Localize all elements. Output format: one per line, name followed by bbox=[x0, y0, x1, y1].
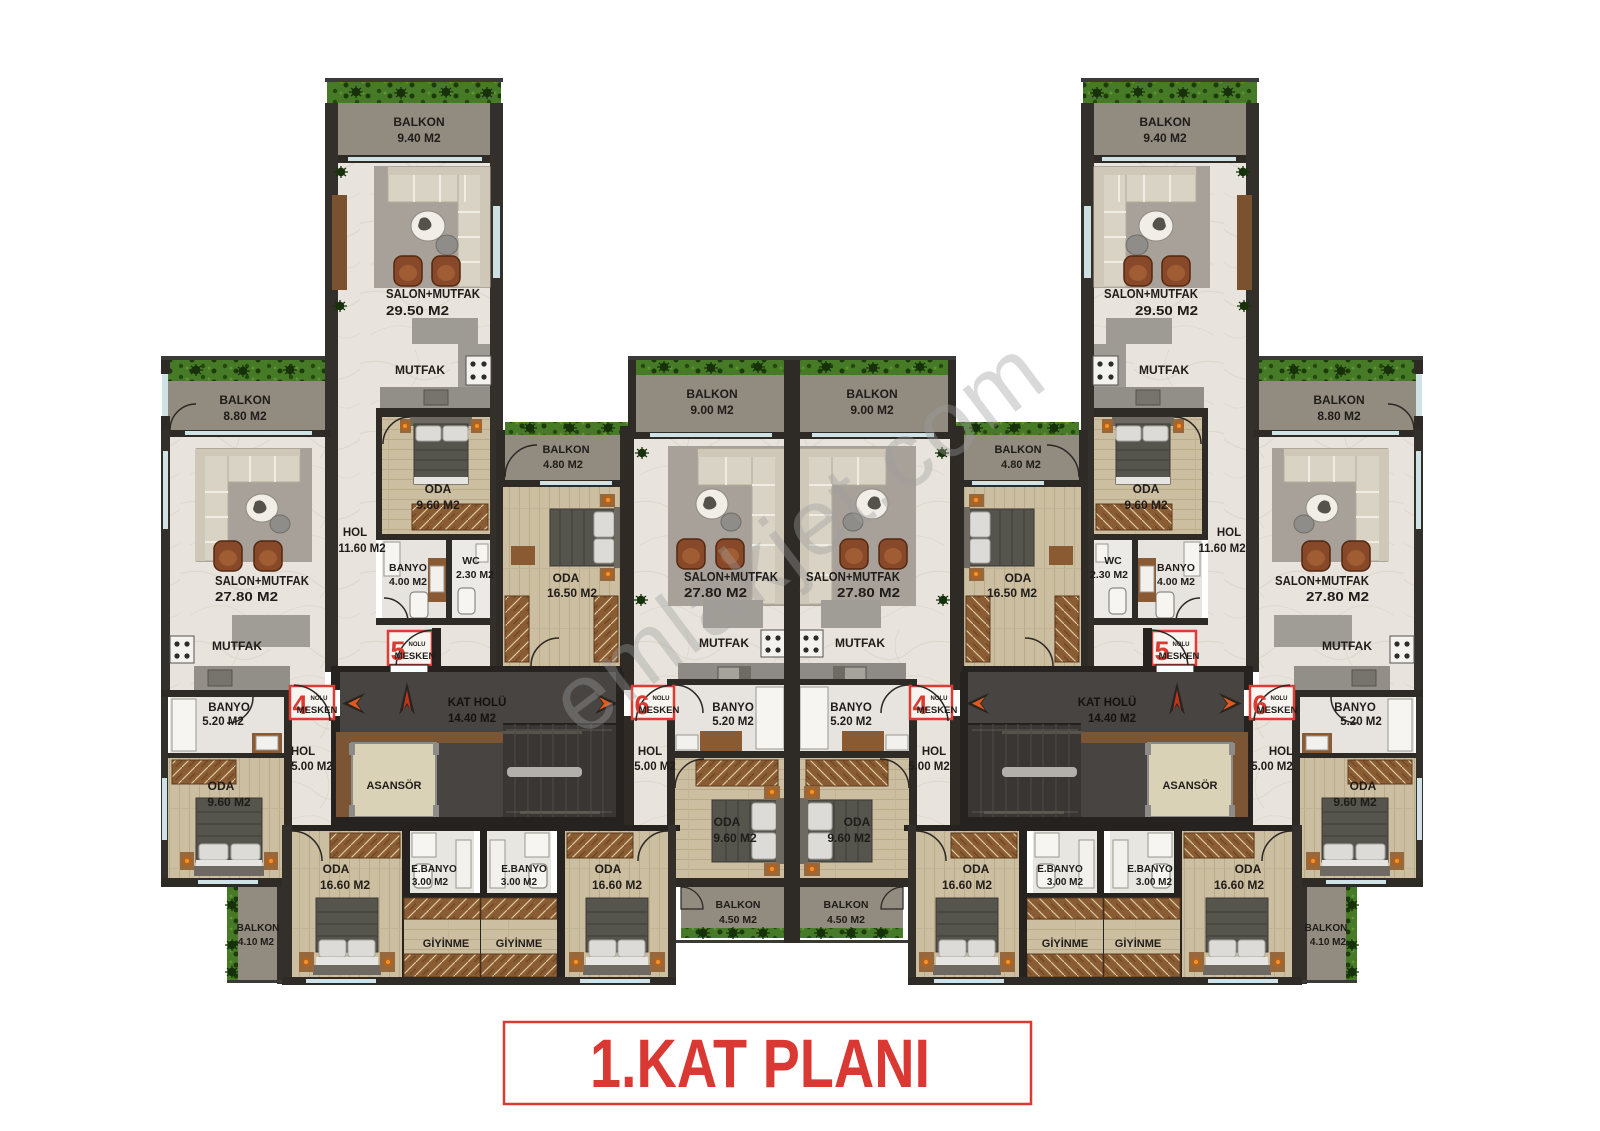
svg-text:WC: WC bbox=[462, 555, 480, 567]
svg-text:ODA: ODA bbox=[425, 482, 452, 496]
svg-text:27.80 M2: 27.80 M2 bbox=[215, 590, 278, 604]
svg-text:ASANSÖR: ASANSÖR bbox=[1162, 779, 1217, 792]
svg-text:HOL: HOL bbox=[343, 527, 367, 539]
svg-text:27.80 M2: 27.80 M2 bbox=[837, 586, 900, 600]
svg-text:HOL: HOL bbox=[1217, 527, 1241, 539]
svg-text:4.10 M2: 4.10 M2 bbox=[238, 937, 275, 948]
svg-text:SALON+MUTFAK: SALON+MUTFAK bbox=[1275, 574, 1369, 588]
svg-text:KAT HOLÜ: KAT HOLÜ bbox=[448, 696, 507, 709]
svg-text:E.BANYO: E.BANYO bbox=[411, 864, 457, 875]
svg-text:9.60 M2: 9.60 M2 bbox=[416, 498, 460, 512]
svg-text:MESKEN: MESKEN bbox=[395, 651, 436, 662]
svg-text:ODA: ODA bbox=[1005, 571, 1032, 585]
svg-text:NOLU: NOLU bbox=[1271, 696, 1288, 702]
svg-text:MUTFAK: MUTFAK bbox=[835, 636, 885, 650]
svg-text:ODA: ODA bbox=[1350, 779, 1377, 793]
svg-text:3.00 M2: 3.00 M2 bbox=[501, 877, 538, 888]
svg-text:ODA: ODA bbox=[208, 779, 235, 793]
svg-text:9.60 M2: 9.60 M2 bbox=[827, 831, 871, 845]
svg-text:11.60 M2: 11.60 M2 bbox=[1198, 543, 1245, 555]
svg-text:3.00 M2: 3.00 M2 bbox=[1136, 877, 1173, 888]
svg-text:NOLU: NOLU bbox=[311, 696, 328, 702]
svg-text:14.40 M2: 14.40 M2 bbox=[1088, 713, 1136, 725]
svg-text:BALKON: BALKON bbox=[824, 899, 869, 911]
svg-text:MESKEN: MESKEN bbox=[1159, 651, 1200, 662]
svg-text:E.BANYO: E.BANYO bbox=[1127, 864, 1173, 875]
svg-text:BANYO: BANYO bbox=[1334, 702, 1376, 714]
svg-text:9.60 M2: 9.60 M2 bbox=[207, 795, 251, 809]
svg-text:BALKON: BALKON bbox=[994, 444, 1041, 456]
svg-text:ODA: ODA bbox=[714, 815, 741, 829]
svg-text:SALON+MUTFAK: SALON+MUTFAK bbox=[806, 570, 900, 584]
svg-text:9.60 M2: 9.60 M2 bbox=[1124, 498, 1168, 512]
svg-text:KAT HOLÜ: KAT HOLÜ bbox=[1078, 696, 1137, 709]
svg-text:16.60 M2: 16.60 M2 bbox=[320, 878, 370, 892]
svg-text:3.00 M2: 3.00 M2 bbox=[412, 877, 449, 888]
svg-text:9.40 M2: 9.40 M2 bbox=[397, 131, 441, 145]
svg-text:9.60 M2: 9.60 M2 bbox=[1333, 795, 1377, 809]
svg-text:MUTFAK: MUTFAK bbox=[395, 363, 445, 377]
svg-text:ODA: ODA bbox=[553, 571, 580, 585]
svg-text:NOLU: NOLU bbox=[1173, 642, 1190, 648]
svg-text:29.50 M2: 29.50 M2 bbox=[386, 304, 449, 318]
svg-text:ODA: ODA bbox=[323, 862, 350, 876]
svg-text:MUTFAK: MUTFAK bbox=[1322, 639, 1372, 653]
svg-text:BALKON: BALKON bbox=[846, 387, 897, 401]
svg-text:BANYO: BANYO bbox=[389, 562, 427, 574]
svg-text:BALKON: BALKON bbox=[542, 444, 589, 456]
svg-text:4.50 M2: 4.50 M2 bbox=[719, 914, 757, 926]
svg-text:9.00 M2: 9.00 M2 bbox=[690, 403, 734, 417]
svg-text:4.80 M2: 4.80 M2 bbox=[543, 459, 583, 471]
svg-text:HOL: HOL bbox=[638, 746, 662, 758]
svg-text:2.30 M2: 2.30 M2 bbox=[1090, 569, 1128, 581]
svg-text:BALKON: BALKON bbox=[1305, 923, 1348, 934]
svg-text:MUTFAK: MUTFAK bbox=[699, 636, 749, 650]
svg-text:BANYO: BANYO bbox=[1157, 562, 1195, 574]
svg-text:5.20 M2: 5.20 M2 bbox=[202, 716, 244, 728]
svg-text:BANYO: BANYO bbox=[712, 702, 754, 714]
svg-text:MESKEN: MESKEN bbox=[917, 705, 958, 716]
svg-text:E.BANYO: E.BANYO bbox=[1037, 864, 1083, 875]
svg-text:2.30 M2: 2.30 M2 bbox=[456, 569, 494, 581]
svg-text:27.80 M2: 27.80 M2 bbox=[1306, 590, 1369, 604]
svg-text:ASANSÖR: ASANSÖR bbox=[366, 779, 421, 792]
svg-text:5.00 M2: 5.00 M2 bbox=[908, 761, 950, 773]
svg-text:4.10 M2: 4.10 M2 bbox=[1310, 937, 1347, 948]
svg-text:NOLU: NOLU bbox=[409, 642, 426, 648]
svg-text:ODA: ODA bbox=[595, 862, 622, 876]
svg-text:4.00 M2: 4.00 M2 bbox=[389, 576, 427, 588]
svg-text:27.80 M2: 27.80 M2 bbox=[684, 586, 747, 600]
svg-text:BALKON: BALKON bbox=[1139, 115, 1190, 129]
svg-text:ODA: ODA bbox=[844, 815, 871, 829]
svg-text:SALON+MUTFAK: SALON+MUTFAK bbox=[215, 574, 309, 588]
svg-text:SALON+MUTFAK: SALON+MUTFAK bbox=[684, 570, 778, 584]
svg-text:4.00 M2: 4.00 M2 bbox=[1157, 576, 1195, 588]
svg-text:9.40 M2: 9.40 M2 bbox=[1143, 131, 1187, 145]
svg-text:E.BANYO: E.BANYO bbox=[501, 864, 547, 875]
svg-text:16.50 M2: 16.50 M2 bbox=[547, 586, 597, 600]
svg-text:NOLU: NOLU bbox=[653, 696, 670, 702]
svg-text:MESKEN: MESKEN bbox=[1257, 705, 1298, 716]
svg-text:MUTFAK: MUTFAK bbox=[1139, 363, 1189, 377]
svg-text:5.20 M2: 5.20 M2 bbox=[830, 716, 872, 728]
svg-text:BANYO: BANYO bbox=[208, 702, 250, 714]
svg-text:GİYİNME: GİYİNME bbox=[423, 937, 469, 950]
svg-text:5.20 M2: 5.20 M2 bbox=[712, 716, 754, 728]
svg-text:HOL: HOL bbox=[1269, 746, 1293, 758]
svg-text:3.00 M2: 3.00 M2 bbox=[1047, 877, 1084, 888]
svg-text:5.00 M2: 5.00 M2 bbox=[1251, 761, 1293, 773]
svg-text:WC: WC bbox=[1104, 555, 1122, 567]
svg-text:16.50 M2: 16.50 M2 bbox=[987, 586, 1037, 600]
svg-text:BALKON: BALKON bbox=[393, 115, 444, 129]
svg-text:ODA: ODA bbox=[1133, 482, 1160, 496]
svg-text:5.00 M2: 5.00 M2 bbox=[634, 761, 676, 773]
svg-text:9.60 M2: 9.60 M2 bbox=[713, 831, 757, 845]
svg-text:HOL: HOL bbox=[922, 746, 946, 758]
svg-text:NOLU: NOLU bbox=[931, 696, 948, 702]
svg-text:BALKON: BALKON bbox=[237, 923, 280, 934]
svg-text:MUTFAK: MUTFAK bbox=[212, 639, 262, 653]
svg-text:MESKEN: MESKEN bbox=[297, 705, 338, 716]
svg-text:BALKON: BALKON bbox=[1313, 393, 1364, 407]
svg-text:8.80 M2: 8.80 M2 bbox=[223, 409, 267, 423]
svg-text:4.80 M2: 4.80 M2 bbox=[1001, 459, 1041, 471]
svg-text:GİYİNME: GİYİNME bbox=[1115, 937, 1161, 950]
svg-text:SALON+MUTFAK: SALON+MUTFAK bbox=[386, 287, 480, 301]
svg-text:BALKON: BALKON bbox=[686, 387, 737, 401]
svg-text:11.60 M2: 11.60 M2 bbox=[338, 543, 385, 555]
svg-text:BALKON: BALKON bbox=[716, 899, 761, 911]
svg-text:SALON+MUTFAK: SALON+MUTFAK bbox=[1104, 287, 1198, 301]
svg-text:ODA: ODA bbox=[963, 862, 990, 876]
svg-text:16.60 M2: 16.60 M2 bbox=[592, 878, 642, 892]
svg-text:4.50 M2: 4.50 M2 bbox=[827, 914, 865, 926]
svg-text:8.80 M2: 8.80 M2 bbox=[1317, 409, 1361, 423]
svg-text:16.60 M2: 16.60 M2 bbox=[1214, 878, 1264, 892]
svg-text:5.20 M2: 5.20 M2 bbox=[1340, 716, 1382, 728]
svg-text:16.60 M2: 16.60 M2 bbox=[942, 878, 992, 892]
svg-text:29.50 M2: 29.50 M2 bbox=[1135, 304, 1198, 318]
svg-text:BANYO: BANYO bbox=[830, 702, 872, 714]
svg-text:MESKEN: MESKEN bbox=[639, 705, 680, 716]
svg-text:GİYİNME: GİYİNME bbox=[1042, 937, 1088, 950]
svg-text:GİYİNME: GİYİNME bbox=[496, 937, 542, 950]
svg-text:BALKON: BALKON bbox=[219, 393, 270, 407]
svg-text:9.00 M2: 9.00 M2 bbox=[850, 403, 894, 417]
svg-text:HOL: HOL bbox=[291, 746, 315, 758]
svg-text:1.KAT PLANI: 1.KAT PLANI bbox=[590, 1025, 930, 1102]
svg-text:14.40 M2: 14.40 M2 bbox=[448, 713, 496, 725]
svg-text:5.00 M2: 5.00 M2 bbox=[291, 761, 333, 773]
svg-text:ODA: ODA bbox=[1235, 862, 1262, 876]
